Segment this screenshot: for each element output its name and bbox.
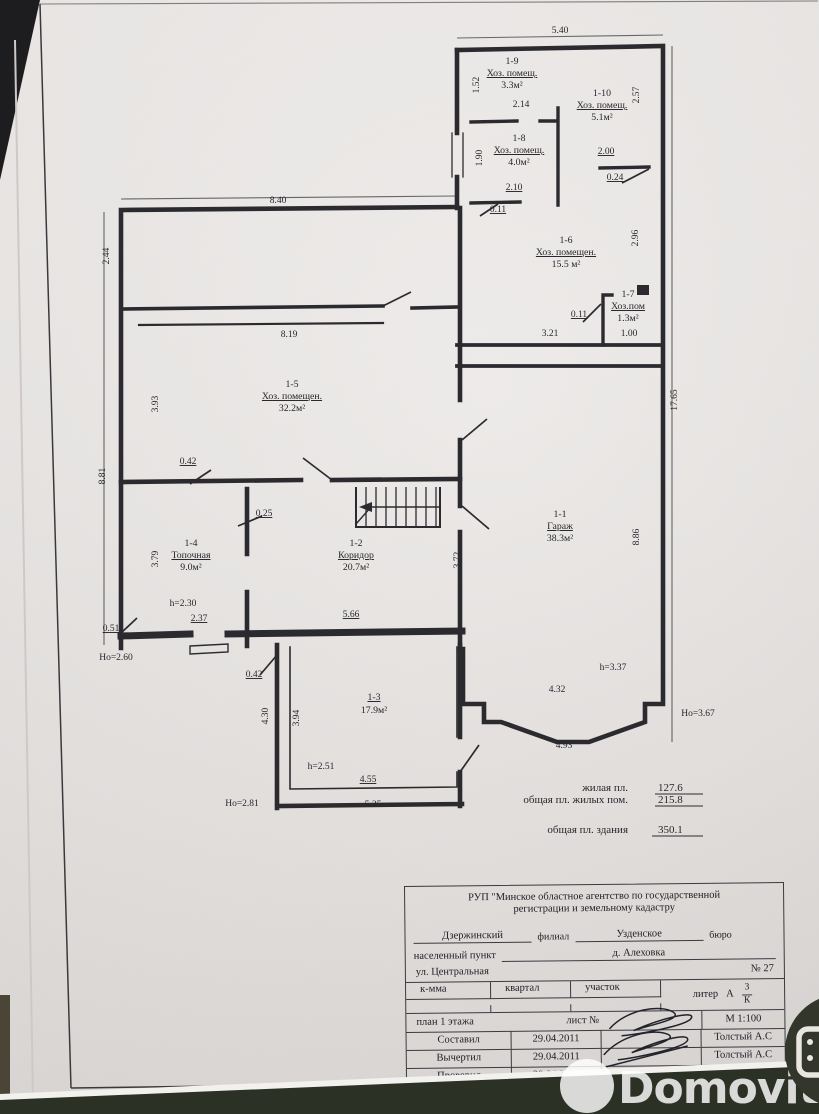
dimension-label: 0.25 [256,509,273,519]
staircase [356,487,441,527]
total-value: 127.6 [658,782,683,794]
dimension-label: 4.30 [261,707,271,724]
room-name: Хоз. помещен. [262,391,322,402]
area-totals: жилая пл.127.6общая пл. жилых пом.215.8о… [523,782,683,836]
row-signature [602,1047,702,1066]
liter-numerator: 3 [742,983,753,995]
dimension-label: 2.44 [102,247,112,264]
settlement-label: населенный пункт [414,950,496,963]
dimension-label: 2.57 [632,86,642,103]
total-value: 215.8 [658,794,683,806]
dimension-label: 5.66 [343,610,360,620]
total-label: жилая пл. [581,782,628,794]
dimension-label: 8.81 [98,467,108,484]
room-area: 20.7м² [343,562,369,573]
agency-line-2: регистрации и земельному кадастру [513,902,675,916]
dimension-label: 3.94 [292,709,302,726]
room-area: 1.3м² [617,313,638,324]
dimension-label: 0.11 [571,310,588,320]
room-area: 3.3м² [501,80,522,91]
row-role: Вычертил [407,1049,512,1068]
col-kmma: к-мма [406,982,491,1000]
dimension-label: 1.00 [621,329,638,339]
row-date: 29.04.2011 [512,1066,602,1085]
dimension-label: Но=3.67 [681,709,715,719]
dimension-label: 0.51 [103,624,120,634]
room-id: 1-5 [285,379,298,390]
scale-label: М 1:100 [701,1010,784,1029]
liter-fraction: 3 К [742,983,753,1005]
total-label: общая пл. здания [547,824,628,836]
dimension-label: 8.40 [270,196,287,206]
bureau-word: бюро [709,929,732,941]
dimension-label: 2.96 [631,229,641,246]
col-kvartal: квартал [491,981,571,999]
dimension-label: 2.14 [513,100,530,110]
dimension-label: 0.11 [490,205,507,215]
dimension-label: h=3.37 [600,663,627,673]
pillar [637,285,649,295]
dimension-label: 2.10 [506,183,523,193]
sheet-label: лист № [566,1014,701,1027]
room-area: 9.0м² [180,562,201,573]
room-name: Хоз. помещ. [494,145,545,156]
dimension-label: 2.00 [598,147,615,157]
dimension-label: Но=2.81 [225,799,259,809]
title-block: РУП "Минское областное агентство по госу… [404,882,786,1082]
branch-word: филиал [537,931,569,943]
dimension-label: 0.24 [607,173,624,183]
room-id: 1-2 [349,538,362,549]
dimension-label: 17.65 [670,389,680,411]
kmma-empty [406,1005,491,1013]
room-area: 4.0м² [508,157,529,168]
room-area: 32.2м² [279,403,305,414]
row-role: Составил [407,1031,512,1050]
dimension-label: 0.42 [180,457,197,467]
dimension-label: 4.32 [549,685,566,695]
dimension-label: 3.72 [453,551,463,568]
row-role: Проверил [407,1067,512,1086]
total-value: 350.1 [658,824,683,836]
liter-value: А [726,989,734,1001]
room-labels: 1-9Хоз. помещ.3.3м²1-10Хоз. помещ.5.1м²1… [171,56,644,716]
room-name: Коридор [338,550,374,561]
row-date: 29.04.2011 [512,1030,602,1049]
dimension-label: h=2.30 [170,599,197,609]
kvartal-empty [491,1004,571,1012]
total-label: общая пл. жилых пом. [523,794,628,806]
row-signature [602,1065,702,1084]
plan-walls [121,46,663,808]
dimension-label: 4.55 [360,775,377,785]
room-id: 1-10 [593,88,611,99]
room-name: Хоз.пом [611,301,645,312]
row-name: Толстый А.С [702,1046,785,1065]
plan-label: план 1 этажа [406,1015,566,1029]
dimension-label: 3.79 [151,550,161,567]
floor-plan-photo: 5.401.522.142.571.902.000.242.100.112.96… [0,0,819,1114]
room-id: 1-7 [621,289,634,300]
room-id: 1-9 [505,56,518,67]
cadastre-grid: к-мма квартал участок литер А 3 К [406,978,784,1013]
row-name: Тумилович Н.П [702,1064,785,1083]
dimension-label: 1.52 [472,76,482,93]
room-name: Хоз. помещ. [577,100,628,111]
room-name: Хоз. помещ. [487,68,538,79]
dimension-label: h=2.51 [308,762,335,772]
dimension-label: 3.21 [542,329,559,339]
branch-name: Дзержинский [413,930,531,944]
row-date: 29.04.2011 [512,1048,602,1067]
signature-rows: Составил 29.04.2011 Толстый А.С Вычертил… [407,1028,786,1086]
room-id: 1-8 [512,133,525,144]
agency-name: РУП "Минское областное агентство по госу… [405,883,783,923]
dimension-label: 0.42 [246,670,263,680]
row-signature [602,1029,702,1048]
dimension-label: 8.19 [281,330,298,340]
room-area: 38.3м² [547,533,573,544]
room-area: 5.1м² [591,112,612,123]
room-area: 17.9м² [361,705,387,716]
room-area: 15.5 м² [552,259,581,270]
dimension-label: 5.25 [365,800,382,810]
dimension-label: 2.37 [191,614,208,624]
room-id: 1-1 [553,509,566,520]
dimension-label: 4.93 [556,741,573,751]
street-name: ул. Центральная [416,966,489,979]
room-id: 1-6 [559,235,572,246]
room-id: 1-4 [184,538,197,549]
dimension-label: 3.93 [151,395,161,412]
room-name: Хоз. помещен. [536,247,596,258]
house-number: № 27 [751,963,774,975]
col-uchastok: участок [571,980,661,998]
liter-cell: литер А 3 К [661,979,784,1010]
row-name: Толстый А.С [701,1028,784,1047]
room-name: Топочная [171,550,211,561]
dimension-label: 1.90 [475,149,485,166]
room-name: Гараж [547,521,573,532]
dimension-label: 8.86 [632,528,642,545]
uchastok-empty [571,1003,661,1011]
liter-denominator: К [744,995,750,1006]
dimension-label: Но=2.60 [99,653,133,663]
room-id: 1-3 [367,692,380,703]
bureau-name: Узденское [575,928,703,942]
liter-label: литер [693,989,718,1001]
dimension-labels: 5.401.522.142.571.902.000.242.100.112.96… [98,26,715,810]
dimension-label: 5.40 [552,26,569,36]
